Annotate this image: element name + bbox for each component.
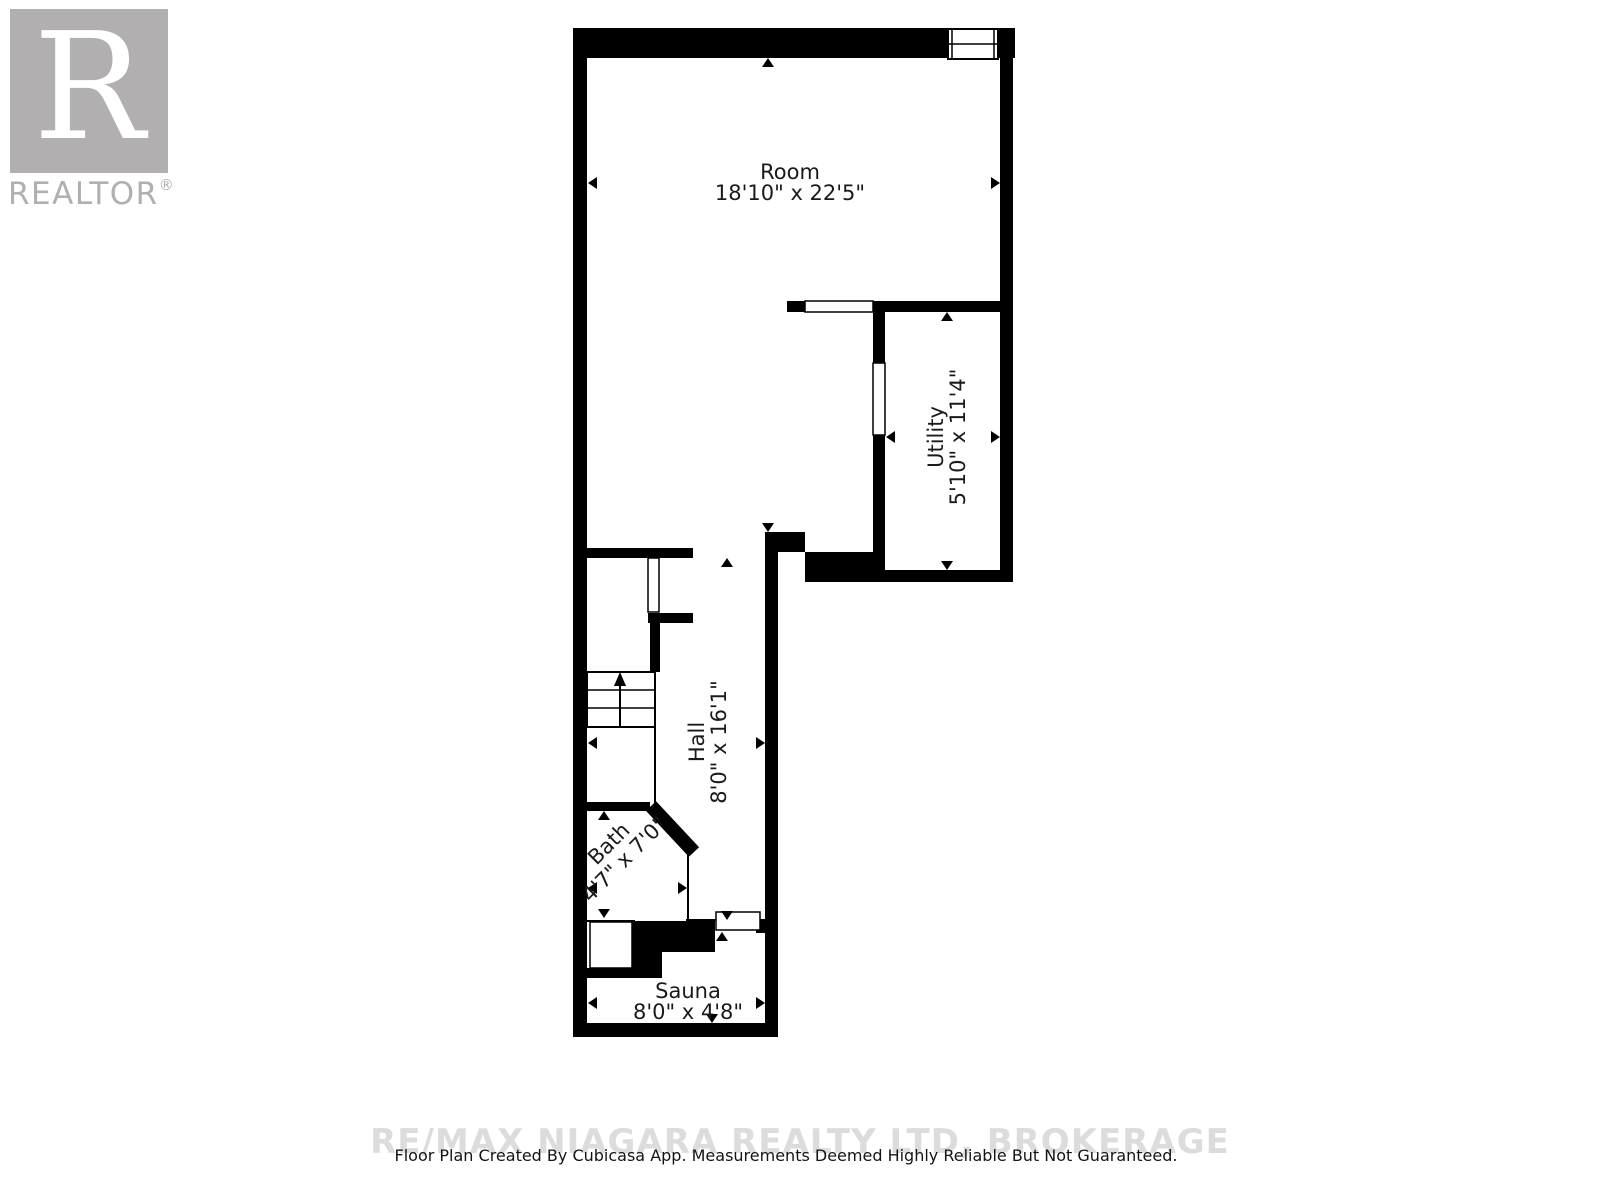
wall-right <box>1000 28 1013 582</box>
footer-disclaimer: Floor Plan Created By Cubicasa App. Meas… <box>0 1146 1572 1165</box>
right-arrow-icon-utility <box>991 431 1000 443</box>
hall-door-leaf <box>648 558 659 612</box>
hall-label-name: Hall <box>685 722 709 762</box>
wall-bath-top <box>573 802 650 811</box>
pass-through-opening <box>805 301 873 312</box>
sauna-label-dims: 8'0" x 4'8" <box>633 1000 743 1024</box>
utility-label-name: Utility <box>924 406 948 468</box>
right-arrow-icon-bath <box>678 882 687 894</box>
left-arrow-icon-sauna <box>588 997 597 1009</box>
room-label-dims: 18'10" x 22'5" <box>715 181 865 205</box>
utility-label-dims: 5'10" x 11'4" <box>946 369 970 506</box>
bath-niche <box>590 922 632 968</box>
wall-sauna-bottom <box>573 1023 778 1037</box>
wall-utility-bottom <box>883 570 1013 582</box>
utility-door-opening <box>873 363 885 435</box>
wall-utility-bottom-left <box>805 552 883 582</box>
down-arrow-icon-utility <box>941 561 953 570</box>
wall-utility-left-upper <box>873 312 885 363</box>
down-arrow-icon-bath <box>598 909 610 918</box>
page-root: R REALTOR® <box>0 0 1600 1200</box>
staircase <box>587 672 655 727</box>
right-arrow-icon-hall <box>756 737 765 749</box>
left-arrow-icon-utility <box>886 431 895 443</box>
left-arrow-icon-hall <box>588 737 597 749</box>
left-arrow-icon-room <box>588 177 597 189</box>
right-arrow-icon-room <box>991 177 1000 189</box>
wall-bath-sauna-block <box>632 921 715 952</box>
floor-plan: Room 18'10" x 22'5" Utility 5'10" x 11'4… <box>0 0 1600 1200</box>
wall-closet-bottom <box>648 613 693 623</box>
wall-hall-top <box>587 548 693 558</box>
wall-utility-top-b <box>873 301 1000 312</box>
hall-label-dims: 8'0" x 16'1" <box>707 680 731 803</box>
wall-closet-stub <box>650 623 660 672</box>
up-arrow-icon-sauna <box>716 932 728 941</box>
up-arrow-icon-bath <box>598 811 610 820</box>
wall-utility-top-a <box>787 301 805 312</box>
sauna-door-opening <box>716 912 760 930</box>
wall-hall-right <box>765 532 778 1037</box>
up-arrow-icon-room <box>762 58 774 67</box>
up-arrow-icon-hall <box>721 558 733 567</box>
up-arrow-icon-utility <box>941 312 953 321</box>
right-arrow-icon-sauna <box>756 997 765 1009</box>
down-arrow-icon-room <box>762 523 774 532</box>
wall-utility-left-lower <box>873 435 885 570</box>
wall-niche-bottom <box>587 968 662 978</box>
